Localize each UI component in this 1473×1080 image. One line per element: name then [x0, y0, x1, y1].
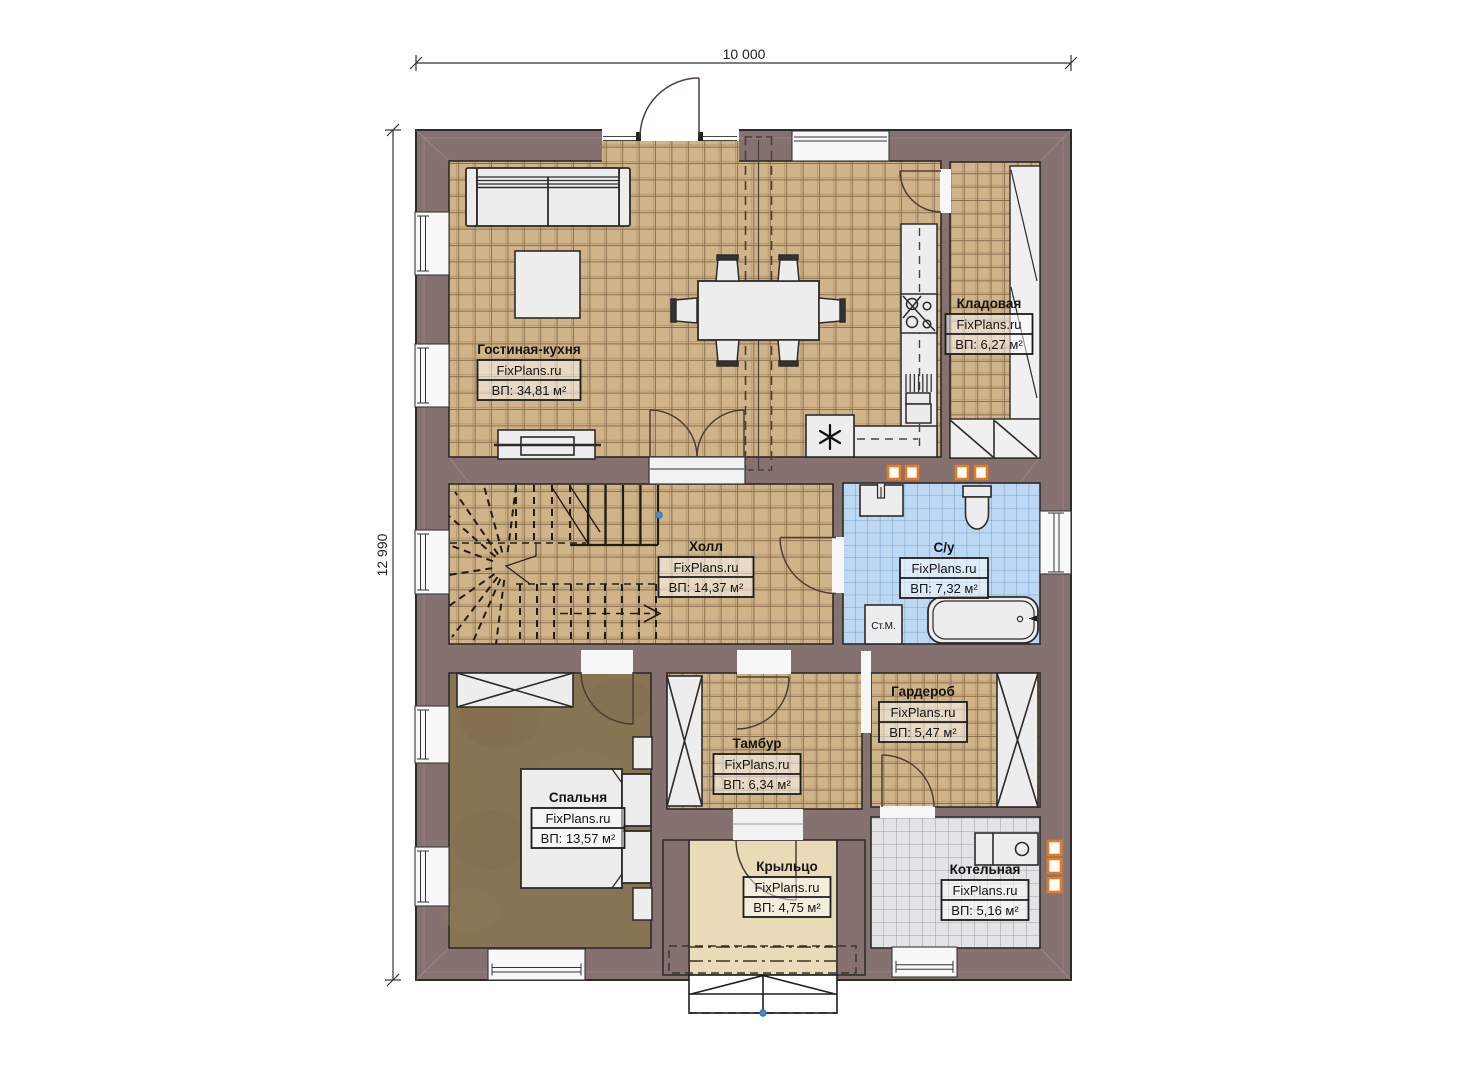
svg-text:ВП: 5,47 м²: ВП: 5,47 м² — [889, 725, 957, 740]
svg-text:FixPlans.ru: FixPlans.ru — [956, 317, 1021, 332]
svg-text:ВП: 5,16 м²: ВП: 5,16 м² — [951, 903, 1019, 918]
svg-text:Кладовая: Кладовая — [957, 296, 1022, 311]
svg-text:Крыльцо: Крыльцо — [756, 859, 817, 874]
svg-text:Ст.М.: Ст.М. — [871, 621, 896, 632]
svg-text:FixPlans.ru: FixPlans.ru — [673, 560, 738, 575]
svg-text:ВП: 13,57 м²: ВП: 13,57 м² — [541, 831, 616, 846]
svg-text:Гостиная-кухня: Гостиная-кухня — [477, 342, 580, 357]
svg-text:ВП: 34,81 м²: ВП: 34,81 м² — [492, 383, 567, 398]
svg-text:FixPlans.ru: FixPlans.ru — [890, 705, 955, 720]
svg-text:FixPlans.ru: FixPlans.ru — [545, 811, 610, 826]
svg-text:ВП: 6,34 м²: ВП: 6,34 м² — [723, 777, 791, 792]
svg-text:ВП: 14,37 м²: ВП: 14,37 м² — [669, 580, 744, 595]
svg-text:10 000: 10 000 — [723, 46, 766, 62]
svg-text:Холл: Холл — [689, 539, 723, 554]
svg-text:ВП: 7,32 м²: ВП: 7,32 м² — [910, 581, 978, 596]
svg-text:12 990: 12 990 — [374, 533, 390, 576]
svg-text:FixPlans.ru: FixPlans.ru — [754, 880, 819, 895]
svg-text:FixPlans.ru: FixPlans.ru — [496, 363, 561, 378]
svg-text:ВП: 6,27 м²: ВП: 6,27 м² — [955, 337, 1023, 352]
svg-text:FixPlans.ru: FixPlans.ru — [911, 561, 976, 576]
svg-text:FixPlans.ru: FixPlans.ru — [952, 883, 1017, 898]
svg-text:ВП: 4,75 м²: ВП: 4,75 м² — [753, 900, 821, 915]
svg-text:Гардероб: Гардероб — [891, 684, 955, 699]
svg-text:Котельная: Котельная — [950, 862, 1021, 877]
svg-text:С/у: С/у — [933, 540, 955, 555]
svg-text:Тамбур: Тамбур — [733, 736, 782, 751]
svg-text:FixPlans.ru: FixPlans.ru — [724, 757, 789, 772]
svg-text:Спальня: Спальня — [549, 790, 607, 805]
